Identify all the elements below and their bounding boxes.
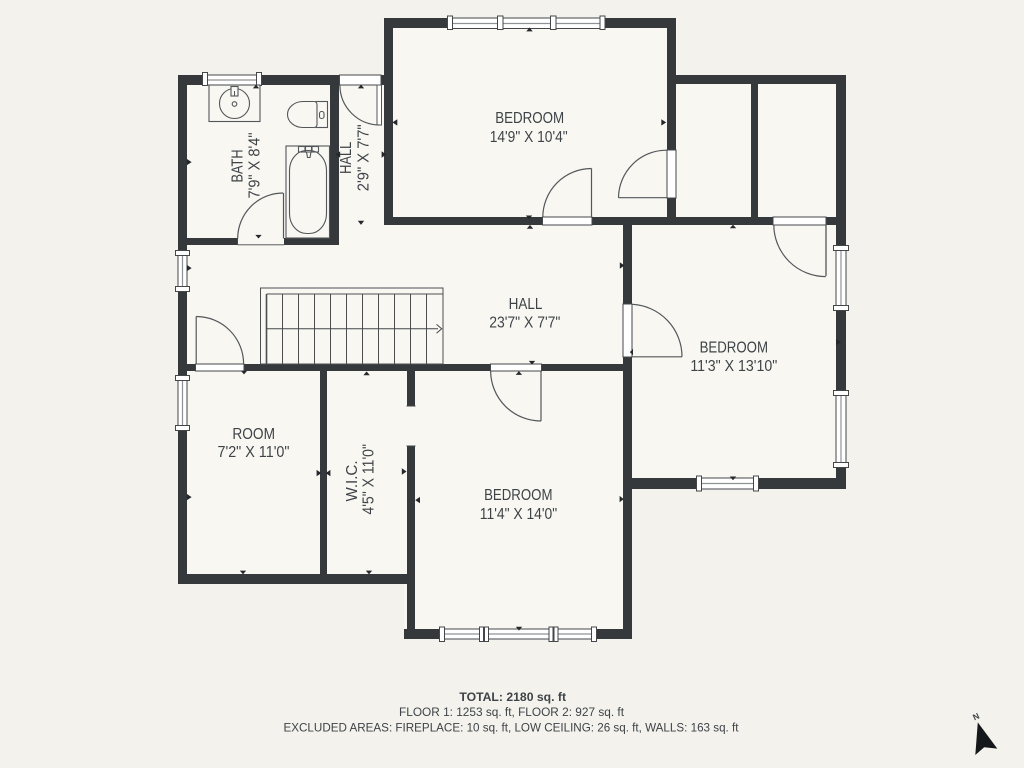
svg-text:FLOOR 1: 1253 sq. ft, FLOOR 2:: FLOOR 1: 1253 sq. ft, FLOOR 2: 927 sq. f… xyxy=(399,705,625,719)
svg-text:ROOM: ROOM xyxy=(232,426,275,443)
svg-text:W.I.C.: W.I.C. xyxy=(344,460,361,501)
svg-text:4'5" X 11'0": 4'5" X 11'0" xyxy=(361,444,378,515)
svg-text:EXCLUDED AREAS: FIREPLACE: 10: EXCLUDED AREAS: FIREPLACE: 10 sq. ft, LO… xyxy=(284,721,740,735)
svg-text:7'9" X 8'4": 7'9" X 8'4" xyxy=(247,133,264,199)
svg-text:BATH: BATH xyxy=(230,149,247,182)
svg-text:BEDROOM: BEDROOM xyxy=(700,340,768,357)
svg-text:HALL: HALL xyxy=(338,141,355,174)
svg-text:7'2" X 11'0": 7'2" X 11'0" xyxy=(218,444,290,461)
svg-text:11'4" X 14'0": 11'4" X 14'0" xyxy=(480,506,557,523)
svg-text:BEDROOM: BEDROOM xyxy=(484,487,552,504)
svg-text:23'7" X 7'7": 23'7" X 7'7" xyxy=(489,314,560,331)
svg-text:HALL: HALL xyxy=(509,296,543,313)
svg-text:2'9" X 7'7": 2'9" X 7'7" xyxy=(355,124,372,191)
svg-text:BEDROOM: BEDROOM xyxy=(495,110,564,127)
svg-text:TOTAL: 2180 sq. ft: TOTAL: 2180 sq. ft xyxy=(459,690,566,704)
svg-text:14'9" X 10'4": 14'9" X 10'4" xyxy=(490,129,568,146)
svg-text:11'3" X 13'10": 11'3" X 13'10" xyxy=(690,358,777,375)
